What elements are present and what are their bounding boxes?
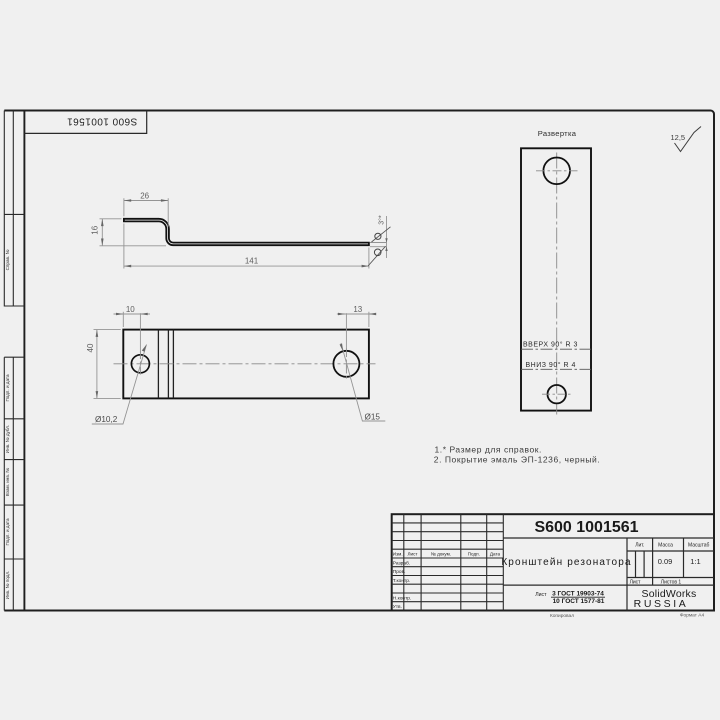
svg-text:Лист: Лист: [408, 552, 419, 557]
svg-text:40: 40: [86, 343, 95, 352]
svg-text:10: 10: [126, 305, 135, 314]
svg-text:RUSSIA: RUSSIA: [634, 598, 689, 610]
svg-text:Инв. № дубл.: Инв. № дубл.: [5, 425, 10, 453]
svg-text:ВВЕРХ 90° R 3: ВВЕРХ 90° R 3: [523, 340, 578, 348]
svg-text:Копировал: Копировал: [550, 613, 574, 619]
svg-text:1:1: 1:1: [690, 557, 700, 566]
svg-text:10 ГОСТ 1577-81: 10 ГОСТ 1577-81: [553, 598, 605, 605]
svg-text:Разраб.: Разраб.: [393, 560, 410, 566]
svg-text:26: 26: [140, 192, 149, 201]
svg-text:S600 1001561: S600 1001561: [67, 116, 137, 127]
svg-text:12,5: 12,5: [670, 133, 685, 142]
svg-text:Справ. №: Справ. №: [5, 250, 10, 271]
svg-text:Масса: Масса: [658, 543, 673, 549]
svg-text:Кронштейн резонатора: Кронштейн резонатора: [501, 557, 631, 568]
svg-text:Листов 1: Листов 1: [661, 580, 682, 586]
svg-text:3 ГОСТ 19903-74: 3 ГОСТ 19903-74: [552, 591, 604, 598]
svg-text:Дата: Дата: [490, 552, 501, 557]
svg-text:Ø10,2: Ø10,2: [95, 415, 118, 424]
svg-text:3°*: 3°*: [378, 215, 386, 225]
svg-text:Формат A4: Формат A4: [680, 613, 705, 619]
svg-text:Т.контр.: Т.контр.: [393, 578, 410, 584]
svg-text:Утв.: Утв.: [393, 604, 402, 610]
svg-text:1.* Размер для справок.: 1.* Размер для справок.: [435, 445, 542, 455]
svg-text:16: 16: [90, 225, 99, 234]
svg-text:Подп. и дата: Подп. и дата: [5, 518, 10, 546]
svg-text:Инв. № подл.: Инв. № подл.: [5, 571, 10, 600]
svg-text:141: 141: [245, 257, 259, 266]
svg-text:S600 1001561: S600 1001561: [534, 519, 638, 536]
svg-text:№ докум.: № докум.: [431, 552, 451, 557]
svg-text:Подп.: Подп.: [468, 552, 480, 557]
svg-text:Лист: Лист: [630, 580, 642, 586]
svg-text:Н.контр.: Н.контр.: [393, 595, 411, 601]
svg-text:Лит.: Лит.: [635, 543, 644, 549]
svg-text:13: 13: [353, 305, 362, 314]
svg-text:ВНИЗ 90° R 4: ВНИЗ 90° R 4: [526, 361, 576, 369]
svg-text:2. Покрытие эмаль ЭП-1236, чер: 2. Покрытие эмаль ЭП-1236, черный.: [434, 455, 600, 465]
svg-text:Взам. инв. №: Взам. инв. №: [5, 468, 10, 497]
svg-text:Подп. и дата: Подп. и дата: [5, 374, 10, 402]
svg-text:Масштаб: Масштаб: [688, 543, 710, 549]
svg-text:0.09: 0.09: [658, 557, 673, 566]
svg-text:Развертка: Развертка: [538, 129, 577, 138]
svg-text:Пров.: Пров.: [393, 569, 406, 575]
svg-text:Изм.: Изм.: [393, 552, 403, 557]
svg-text:Ø15: Ø15: [365, 413, 381, 422]
svg-text:Лист: Лист: [535, 592, 547, 598]
